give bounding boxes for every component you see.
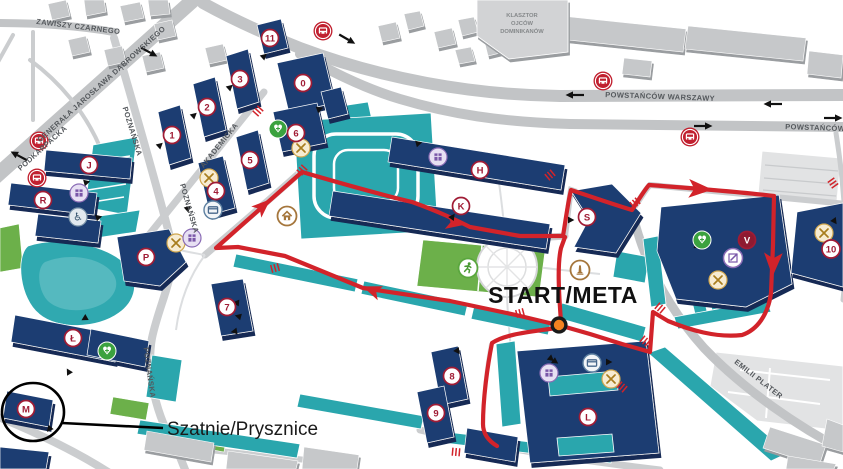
atm-icon [583, 354, 601, 372]
restaurant-icon [709, 271, 727, 289]
restaurant-icon [167, 234, 185, 252]
building-badge-11: 11 [262, 30, 279, 47]
locker-rooms-label: Szatnie/Prysznice [167, 419, 318, 440]
first-aid-icon [269, 120, 287, 138]
svg-text:11: 11 [265, 33, 276, 44]
svg-text:8: 8 [449, 371, 454, 382]
start-dot [554, 320, 564, 330]
building-badge-L: L [580, 409, 597, 426]
building-badge-5: 5 [242, 152, 259, 169]
library-icon [540, 364, 558, 382]
svg-text:7: 7 [224, 302, 229, 313]
first-aid-icon [693, 231, 711, 249]
svg-text:2: 2 [204, 102, 209, 113]
restaurant-icon [602, 370, 620, 388]
building-badge-R: R [35, 192, 52, 209]
atm-icon [204, 201, 222, 219]
wheelchair-icon [69, 208, 87, 226]
svg-text:K: K [458, 201, 465, 212]
bus-stop-icon [594, 72, 613, 91]
svg-text:L: L [585, 412, 591, 423]
bus-stop-icon [28, 169, 47, 188]
home-icon [278, 207, 297, 226]
svg-text:H: H [477, 165, 484, 176]
svg-text:6: 6 [293, 128, 298, 139]
building-badge-10: 10 [822, 240, 840, 258]
campus-map: ♿ ♥ [0, 0, 843, 469]
building-badge-9: 9 [428, 405, 445, 422]
svg-text:M: M [22, 404, 30, 415]
svg-text:5: 5 [247, 155, 253, 166]
svg-text:S: S [584, 212, 590, 223]
svg-text:DOMINIKANÓW: DOMINIKANÓW [500, 27, 544, 35]
building-badge-7: 7 [219, 299, 236, 316]
svg-text:P: P [143, 252, 150, 263]
bus-stop-icon [314, 22, 333, 41]
building-badge-3: 3 [232, 71, 249, 88]
svg-text:R: R [40, 195, 47, 206]
svg-text:4: 4 [213, 186, 219, 197]
building-badge-1: 1 [164, 127, 181, 144]
building-badge-6: 6 [288, 125, 305, 142]
svg-text:J: J [86, 160, 91, 171]
library-icon [70, 184, 88, 202]
building-badge-Ł: Ł [65, 330, 82, 347]
building-badge-8: 8 [444, 368, 461, 385]
svg-text:1: 1 [169, 130, 175, 141]
library-icon [429, 148, 447, 166]
building-badge-S: S [579, 209, 596, 226]
svg-text:0: 0 [300, 78, 305, 89]
building-badge-P: P [138, 249, 155, 266]
building-badge-J: J [81, 157, 98, 174]
svg-text:V: V [744, 235, 751, 246]
first-aid-icon [98, 342, 116, 360]
building-badge-2: 2 [199, 99, 216, 116]
start-meta-label: START/META [488, 282, 638, 308]
building-badge-M: M [18, 401, 35, 418]
bus-stop-icon [681, 128, 700, 147]
svg-text:10: 10 [826, 244, 837, 255]
monument-icon [571, 261, 590, 280]
svg-text:3: 3 [237, 74, 242, 85]
runner-icon [459, 259, 478, 278]
svg-text:9: 9 [433, 408, 438, 419]
svg-text:KLASZTOR: KLASZTOR [506, 13, 538, 19]
building-badge-V: V [739, 232, 756, 249]
svg-text:Ł: Ł [70, 333, 76, 344]
building-badge-H: H [472, 162, 489, 179]
svg-text:OJCÓW: OJCÓW [511, 19, 533, 27]
building-badge-4: 4 [208, 183, 225, 200]
building-badge-K: K [453, 198, 470, 215]
building-badge-0: 0 [295, 75, 312, 92]
pencil-icon [724, 249, 743, 268]
